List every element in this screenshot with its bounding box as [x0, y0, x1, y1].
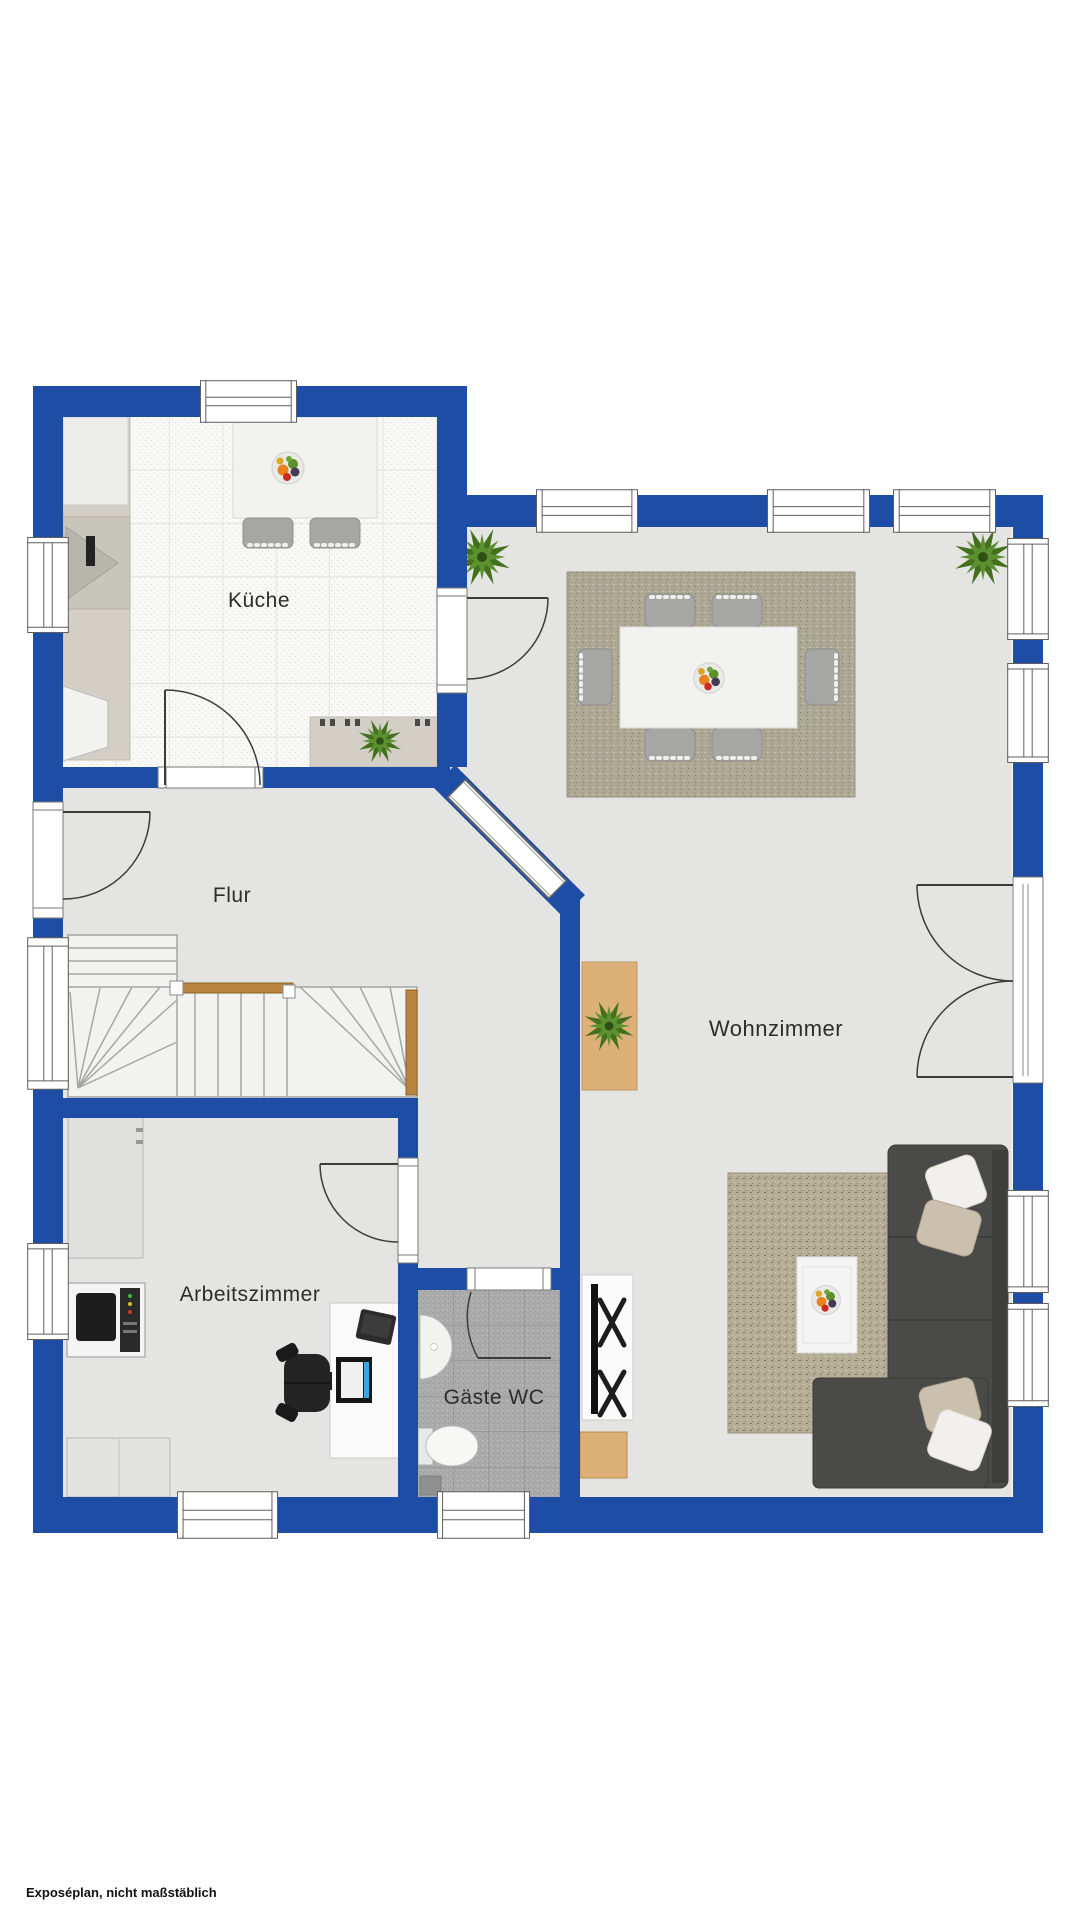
- handrail-post: [170, 981, 183, 995]
- room-label-wohnzimmer: Wohnzimmer: [709, 1016, 843, 1041]
- wall-kitchen-right: [437, 386, 467, 767]
- room-label-kueche: Küche: [228, 589, 290, 612]
- wardrobe: [68, 1117, 143, 1258]
- printer: [67, 1283, 145, 1357]
- window: [27, 1243, 69, 1339]
- window: [27, 938, 69, 1089]
- stove-detail: [86, 536, 95, 566]
- sink-drain: [431, 1344, 438, 1351]
- window: [27, 537, 69, 632]
- handrail-top: [182, 983, 293, 993]
- window: [1007, 664, 1049, 763]
- fridge: [63, 417, 128, 505]
- wardrobe-handle: [136, 1128, 143, 1132]
- handrail-side: [406, 990, 417, 1095]
- wall-living-left: [560, 893, 580, 1533]
- page: Küche Flur Wohnzimmer Arbeitszimmer Gäst…: [0, 0, 1080, 1920]
- fruit-bowl-icon: [812, 1286, 841, 1315]
- room-label-gaeste-wc: Gäste WC: [444, 1386, 545, 1409]
- footer-disclaimer: Exposéplan, nicht maßstäblich: [26, 1885, 217, 1900]
- window: [178, 1491, 278, 1539]
- window: [1007, 1191, 1049, 1293]
- handrail-post: [283, 985, 295, 998]
- wardrobe-handle: [136, 1140, 143, 1144]
- window: [894, 489, 996, 533]
- window: [437, 1491, 529, 1539]
- window: [1007, 1304, 1049, 1407]
- floorplan-svg: Küche Flur Wohnzimmer Arbeitszimmer Gäst…: [0, 0, 1080, 1920]
- fruit-bowl-icon: [694, 663, 724, 693]
- toilet: [418, 1426, 478, 1466]
- side-stool: [580, 1432, 627, 1478]
- fruit-bowl-icon: [272, 452, 304, 484]
- window: [200, 380, 296, 423]
- kitchen-table: [233, 417, 377, 518]
- room-label-flur: Flur: [213, 884, 251, 907]
- window: [1007, 539, 1049, 640]
- room-label-arbeitszimmer: Arbeitszimmer: [180, 1283, 321, 1306]
- monitor: [336, 1357, 372, 1403]
- wall-under-stairs: [63, 1098, 418, 1118]
- window: [768, 489, 870, 533]
- window: [537, 489, 638, 533]
